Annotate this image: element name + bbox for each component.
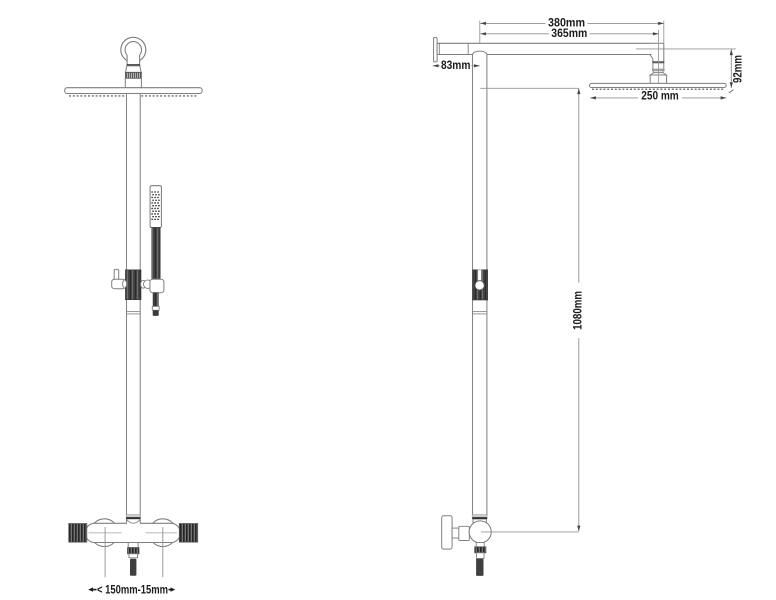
svg-text:83mm: 83mm: [441, 60, 471, 72]
svg-text:250 mm: 250 mm: [641, 90, 679, 102]
svg-text:1080mm: 1080mm: [573, 291, 585, 330]
svg-text:< 150mm-15mm: < 150mm-15mm: [97, 585, 168, 597]
svg-text:92mm: 92mm: [733, 55, 745, 83]
svg-text:365mm: 365mm: [551, 28, 587, 40]
